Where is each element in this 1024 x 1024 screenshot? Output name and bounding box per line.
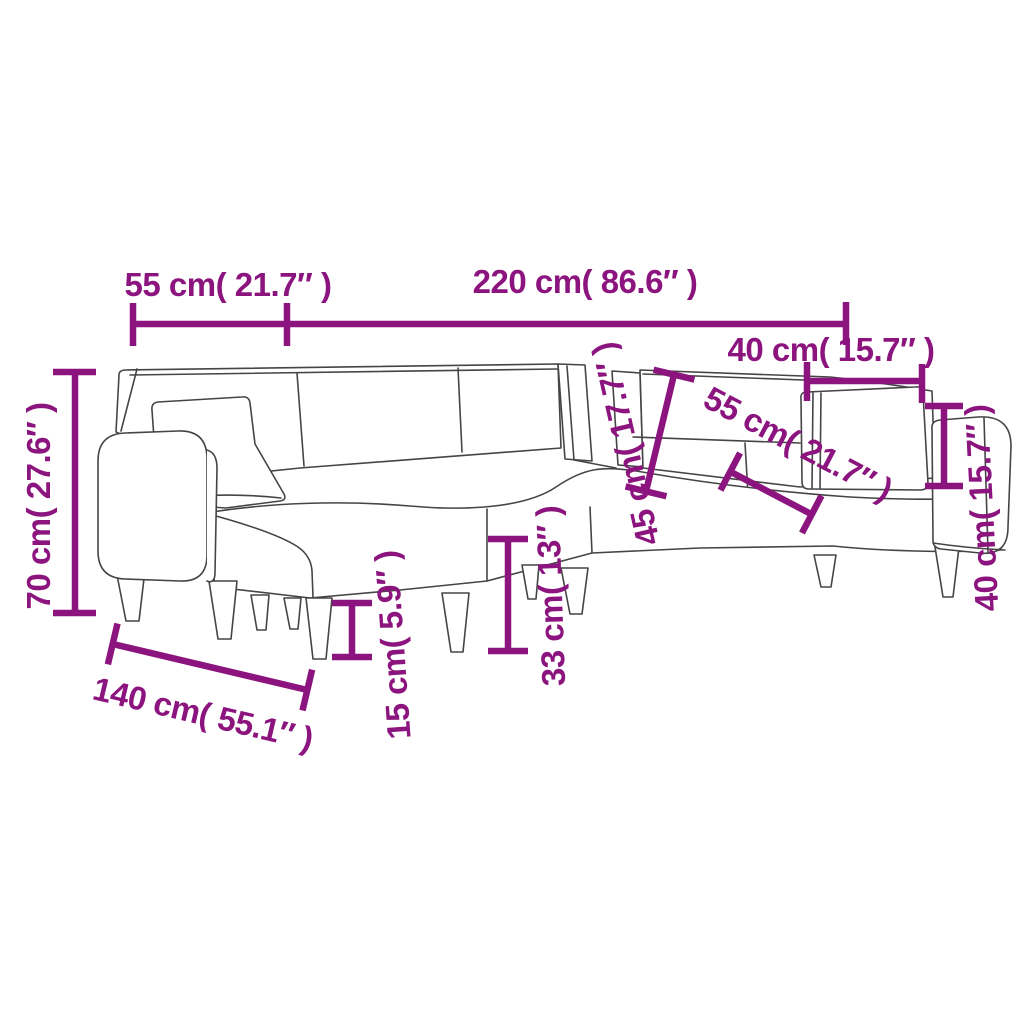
dim-label-33-seat: 33 cm( 13″ )	[529, 505, 573, 687]
left-armrest	[98, 431, 217, 582]
dim-label-220-top: 220 cm( 86.6″ )	[473, 263, 698, 301]
dim-label-40-top-right: 40 cm( 15.7″ )	[728, 331, 935, 369]
dimension-diagram: 55 cm( 21.7″ ) 220 cm( 86.6″ ) 40 cm( 15…	[0, 0, 1024, 1024]
dim-label-70-left: 70 cm( 27.6″ )	[20, 403, 58, 610]
dim-line-70-left	[53, 372, 96, 613]
dim-label-55-top: 55 cm( 21.7″ )	[125, 266, 332, 304]
dim-line-15-leg	[332, 603, 372, 657]
sofa-illustration	[0, 0, 1024, 1024]
